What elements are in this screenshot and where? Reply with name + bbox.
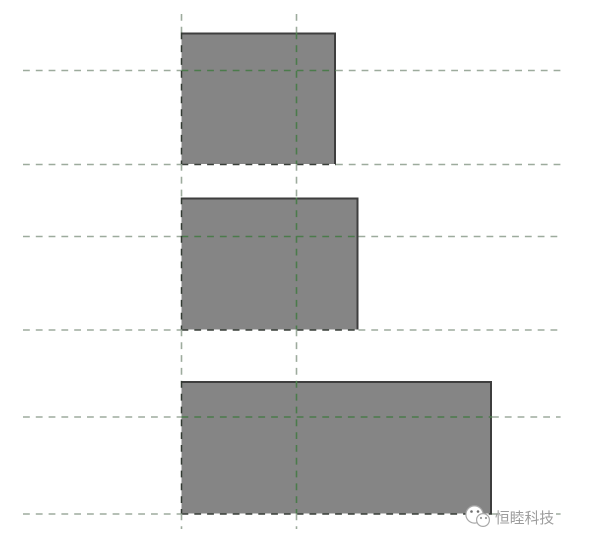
svg-text:恒睦科技: 恒睦科技: [495, 510, 554, 527]
